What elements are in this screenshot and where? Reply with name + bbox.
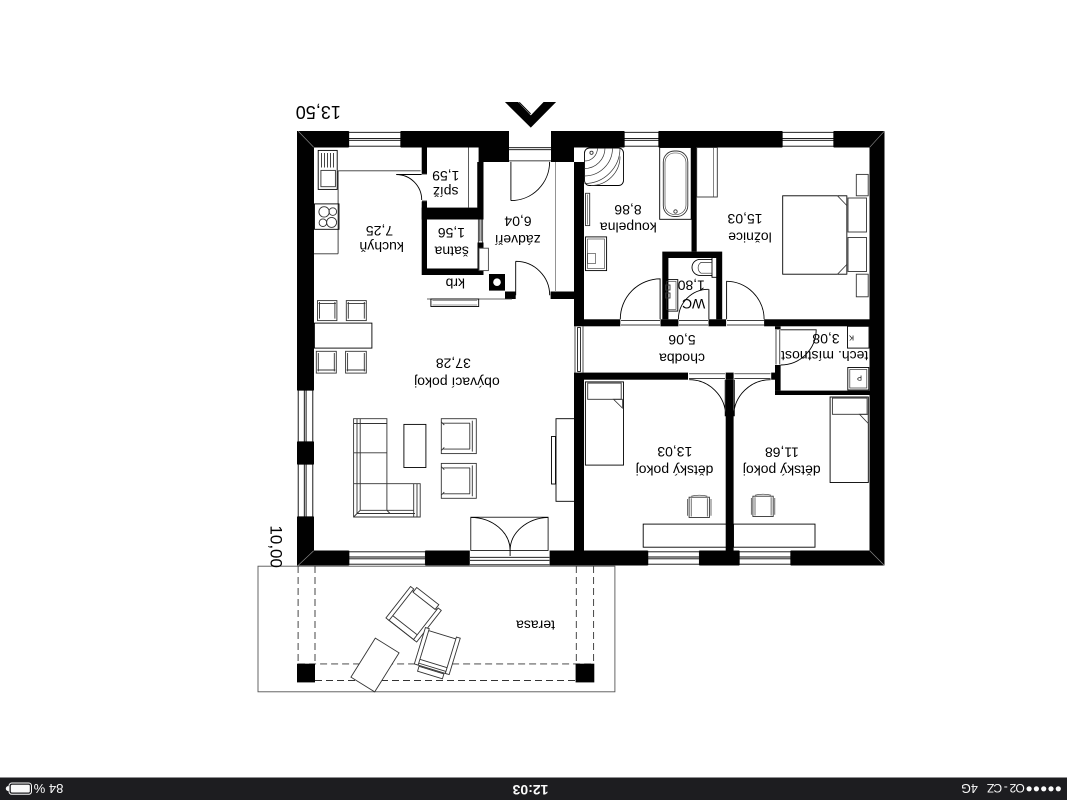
svg-text:84 %: 84 % xyxy=(33,781,63,796)
svg-text:6,04: 6,04 xyxy=(504,213,531,229)
svg-text:1,80: 1,80 xyxy=(677,278,704,294)
svg-text:4G: 4G xyxy=(961,781,978,795)
svg-text:1,59: 1,59 xyxy=(432,168,459,184)
svg-text:dětský pokoj: dětský pokoj xyxy=(636,462,714,478)
svg-text:10,00: 10,00 xyxy=(267,525,286,568)
svg-text:11,68: 11,68 xyxy=(765,444,799,460)
svg-text:O2 - CZ: O2 - CZ xyxy=(987,781,1025,795)
svg-text:terasa: terasa xyxy=(516,618,555,634)
svg-text:1,56: 1,56 xyxy=(438,225,465,241)
svg-text:WC: WC xyxy=(682,296,705,312)
svg-text:P: P xyxy=(857,373,862,382)
svg-text:spíž: spíž xyxy=(433,184,459,200)
svg-text:K: K xyxy=(849,333,854,342)
svg-text:37,28: 37,28 xyxy=(436,356,471,372)
svg-text:dětský pokoj: dětský pokoj xyxy=(743,463,821,479)
svg-text:3,08: 3,08 xyxy=(812,331,839,347)
svg-text:tech. místnost: tech. místnost xyxy=(781,348,868,364)
svg-text:8,86: 8,86 xyxy=(614,202,641,218)
svg-text:koupelna: koupelna xyxy=(600,220,657,236)
svg-text:12:03: 12:03 xyxy=(512,782,548,798)
svg-text:krb: krb xyxy=(445,276,465,292)
svg-text:13,03: 13,03 xyxy=(657,444,692,460)
svg-text:šatna: šatna xyxy=(434,243,468,259)
svg-text:kuchyň: kuchyň xyxy=(360,239,404,255)
svg-text:5,06: 5,06 xyxy=(668,332,695,348)
svg-text:chodba: chodba xyxy=(659,351,705,367)
svg-text:15,03: 15,03 xyxy=(727,211,762,227)
svg-text:obývací pokoj: obývací pokoj xyxy=(414,375,500,391)
svg-text:zádveří: zádveří xyxy=(495,232,541,248)
svg-text:13,50: 13,50 xyxy=(296,102,341,122)
svg-text:7,25: 7,25 xyxy=(366,223,393,239)
svg-text:ložnice: ložnice xyxy=(728,230,772,246)
